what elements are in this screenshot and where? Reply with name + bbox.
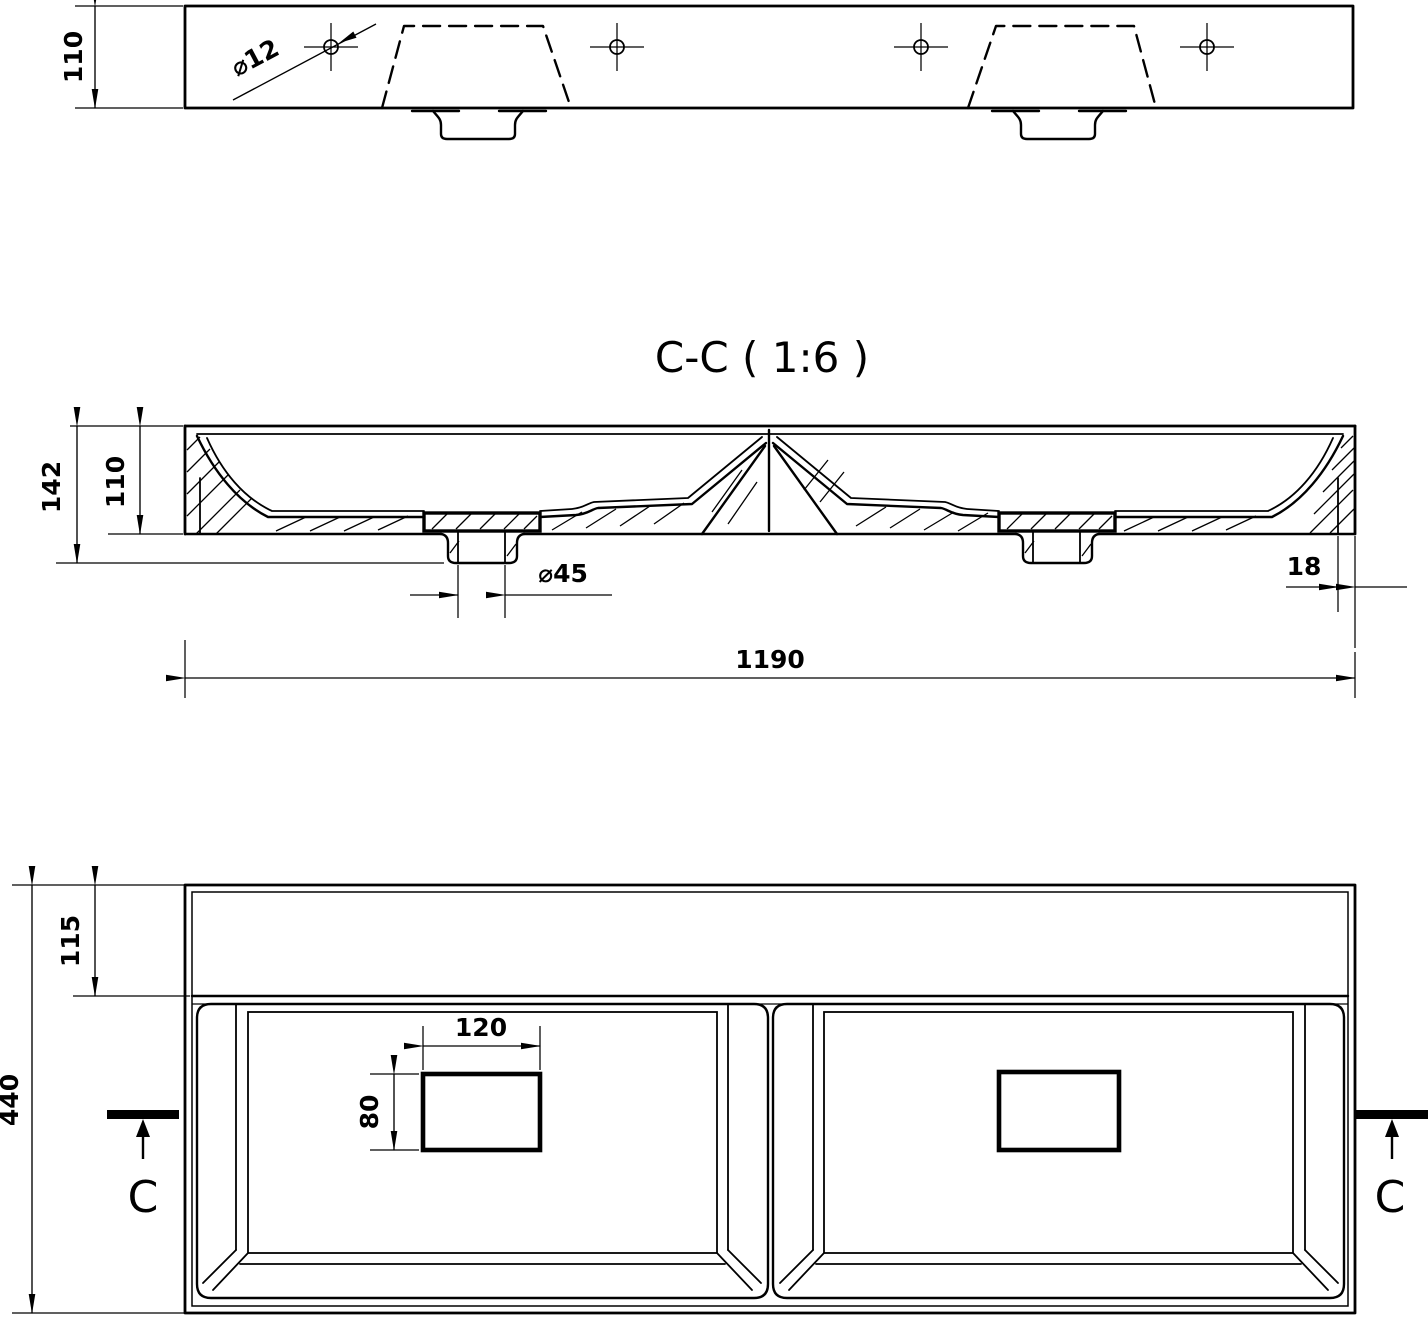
drain-cutout-right: [999, 1072, 1119, 1150]
leader-arrowhead: [339, 32, 357, 44]
hidden-basin-right: [968, 26, 1156, 108]
cut-arrow-head: [1385, 1119, 1399, 1137]
dim-120: 120: [423, 1013, 540, 1070]
hatch-traps: [450, 541, 1091, 556]
engineering-drawing-sheet: 110 ⌀12 C-C ( 1:6 ): [0, 0, 1428, 1321]
dim-1190: 1190: [185, 640, 1355, 698]
basin-profile-right: [773, 436, 1343, 534]
cut-label-left: C: [128, 1172, 159, 1223]
basin-floor-right: [780, 1004, 1338, 1290]
dim-label-142: 142: [37, 461, 66, 513]
hatch-flanges: [432, 514, 1112, 529]
section-title: C-C ( 1:6 ): [655, 333, 869, 382]
dim-label-120: 120: [455, 1013, 507, 1042]
top-view: 110 ⌀12: [59, 6, 1353, 139]
dim-label-18: 18: [1287, 552, 1322, 581]
dim-label-1190: 1190: [735, 645, 805, 674]
dim-label-dia45: ⌀45: [538, 559, 588, 588]
hole-center-mark: [590, 23, 644, 71]
dim-label-110-section: 110: [101, 456, 130, 508]
dim-80: 80: [355, 1074, 419, 1150]
section-hatching: [187, 436, 1354, 556]
drawing-canvas: 110 ⌀12 C-C ( 1:6 ): [0, 0, 1428, 1321]
dim-label-115: 115: [56, 915, 85, 967]
dim-115: 115: [56, 885, 190, 996]
plan-view: 120 80 115 440 C: [0, 885, 1428, 1313]
hatch-right-wall: [1310, 436, 1354, 533]
cut-arrow-head: [136, 1119, 150, 1137]
drain-cutout-left: [423, 1074, 540, 1150]
hole-center-mark: [894, 23, 948, 71]
cut-label-right: C: [1375, 1172, 1406, 1223]
cut-plane-marker-right: C: [1356, 1110, 1428, 1223]
dim-440: 440: [0, 885, 185, 1313]
dim-dia45: ⌀45: [410, 559, 612, 618]
section-view: C-C ( 1:6 ): [37, 333, 1407, 698]
dim-label-dia12: ⌀12: [226, 33, 284, 82]
dim-label-80: 80: [355, 1095, 384, 1130]
cut-plane-bar: [1356, 1110, 1428, 1119]
cut-plane-marker-left: C: [107, 1110, 179, 1223]
cut-plane-bar: [107, 1110, 179, 1119]
hole-center-marks: [304, 23, 1234, 71]
hole-center-mark: [1180, 23, 1234, 71]
hatch-floor-right: [804, 460, 1256, 531]
hidden-basin-left: [382, 26, 571, 108]
hatch-left-wall: [187, 437, 252, 534]
dim-110-section: 110: [101, 426, 140, 534]
basin-floor-left: [203, 1004, 761, 1290]
dim-142: 142: [37, 426, 444, 563]
dim-18: 18: [1286, 536, 1407, 648]
dia12-callout: ⌀12: [226, 24, 376, 100]
hole-center-mark: [304, 23, 358, 71]
hatch-floor-left: [276, 470, 757, 531]
top-view-outline: [185, 6, 1353, 108]
dim-110-top: 110: [59, 6, 183, 108]
dim-label-110-top: 110: [59, 31, 88, 83]
drain-outlet-left: [412, 111, 546, 139]
basin-profile-left: [197, 436, 766, 534]
dim-label-440: 440: [0, 1074, 24, 1126]
drain-outlet-right: [992, 111, 1126, 139]
